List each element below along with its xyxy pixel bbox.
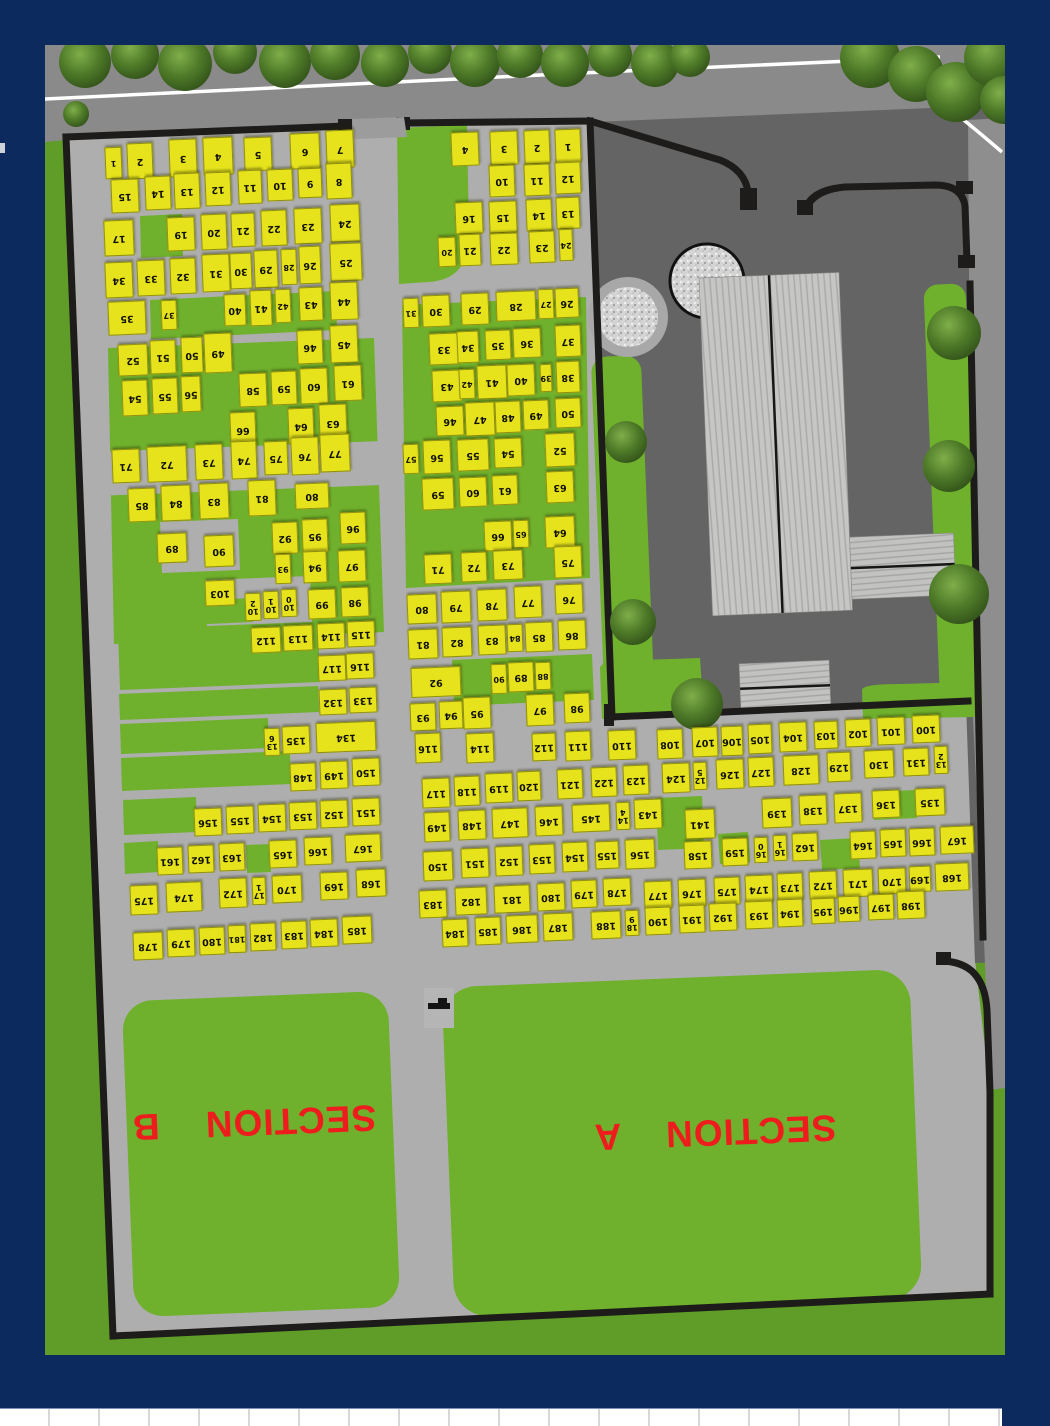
plot-a-116[interactable]: 116 [414, 732, 441, 763]
plot-a-100[interactable]: 100 [911, 714, 940, 743]
plot-a-184[interactable]: 184 [441, 918, 468, 947]
plot-a-139[interactable]: 139 [761, 797, 792, 828]
plot-a-55[interactable]: 55 [456, 438, 489, 471]
plot-a-64[interactable]: 64 [544, 515, 575, 548]
plot-a-93[interactable]: 93 [409, 702, 436, 731]
plot-b-94[interactable]: 94 [302, 551, 327, 584]
plot-a-127[interactable]: 127 [747, 756, 774, 787]
plot-b-55[interactable]: 55 [151, 377, 178, 414]
plot-b-52[interactable]: 52 [117, 343, 148, 376]
plot-a-117[interactable]: 117 [421, 777, 450, 808]
plot-a-176[interactable]: 176 [677, 878, 706, 907]
plot-b-168[interactable]: 168 [355, 868, 386, 897]
plot-a-85[interactable]: 85 [524, 621, 553, 652]
plot-b-28[interactable]: 28 [280, 249, 297, 286]
plot-b-135[interactable]: 135 [281, 725, 310, 754]
plot-b-13[interactable]: 13 [173, 172, 200, 209]
plot-a-182[interactable]: 182 [454, 886, 487, 915]
plot-a-105[interactable]: 105 [747, 724, 772, 755]
plot-b-73[interactable]: 73 [194, 443, 223, 480]
plot-b-71[interactable]: 71 [111, 448, 140, 483]
plot-a-120[interactable]: 120 [516, 771, 541, 802]
plot-a-59[interactable]: 59 [421, 477, 454, 510]
plot-a-20[interactable]: 20 [437, 237, 456, 268]
plot-b-41[interactable]: 41 [249, 290, 272, 327]
plot-a-110[interactable]: 110 [607, 729, 636, 760]
plot-a-119[interactable]: 119 [484, 772, 513, 803]
plot-b-54[interactable]: 54 [121, 379, 148, 416]
plot-a-152[interactable]: 152 [494, 845, 523, 876]
plot-a-14[interactable]: 14 [525, 198, 552, 231]
plot-b-97[interactable]: 97 [337, 549, 366, 582]
plot-b-184[interactable]: 184 [309, 918, 338, 947]
plot-b-149[interactable]: 149 [319, 760, 348, 789]
plot-b-163[interactable]: 163 [218, 842, 245, 871]
plot-a-162[interactable]: 162 [791, 832, 818, 861]
plot-b-166[interactable]: 166 [303, 836, 332, 865]
plot-b-49[interactable]: 49 [203, 332, 233, 373]
plot-a-123[interactable]: 123 [622, 764, 649, 795]
plot-b-76[interactable]: 76 [290, 436, 320, 475]
plot-a-33[interactable]: 33 [428, 332, 459, 365]
plot-a-103[interactable]: 103 [813, 721, 838, 750]
plot-b-50[interactable]: 50 [180, 337, 203, 374]
plot-b-95[interactable]: 95 [301, 518, 328, 553]
plot-a-189[interactable]: 18 9 [624, 910, 639, 937]
plot-a-30[interactable]: 30 [421, 294, 450, 327]
plot-b-33[interactable]: 33 [136, 259, 165, 296]
plot-a-156[interactable]: 156 [624, 838, 655, 869]
plot-b-72[interactable]: 72 [146, 445, 187, 483]
plot-a-79[interactable]: 79 [440, 590, 471, 623]
plot-a-129[interactable]: 129 [826, 752, 851, 783]
plot-b-11[interactable]: 11 [237, 170, 262, 205]
plot-a-107[interactable]: 107 [691, 726, 718, 757]
plot-a-71[interactable]: 71 [423, 553, 452, 584]
plot-a-149[interactable]: 149 [423, 811, 450, 842]
plot-a-37[interactable]: 37 [554, 324, 581, 357]
plot-a-90[interactable]: 90 [490, 664, 507, 695]
plot-a-102[interactable]: 102 [844, 718, 871, 747]
plot-a-181[interactable]: 181 [493, 884, 530, 913]
plot-b-37[interactable]: 37 [160, 300, 177, 331]
plot-b-6[interactable]: 6 [289, 132, 320, 169]
plot-a-56[interactable]: 56 [422, 439, 451, 474]
plot-b-103[interactable]: 103 [204, 579, 235, 606]
plot-b-151[interactable]: 151 [351, 797, 380, 826]
plot-a-40[interactable]: 40 [506, 363, 535, 396]
plot-a-36[interactable]: 36 [512, 327, 541, 358]
plot-a-50[interactable]: 50 [554, 397, 581, 428]
plot-b-99[interactable]: 99 [307, 588, 336, 619]
plot-a-42[interactable]: 42 [458, 369, 475, 400]
plot-a-143[interactable]: 143 [633, 798, 662, 829]
plot-a-188[interactable]: 188 [590, 910, 621, 939]
plot-a-165[interactable]: 165 [879, 828, 906, 857]
plot-a-108[interactable]: 108 [656, 728, 683, 759]
plot-b-20[interactable]: 20 [200, 213, 227, 250]
plot-a-153[interactable]: 153 [528, 843, 555, 874]
border-bottom [0, 1355, 1050, 1408]
plot-b-171[interactable]: 17 1 [251, 877, 266, 906]
plot-a-3[interactable]: 3 [489, 130, 518, 165]
plot-a-2[interactable]: 2 [523, 129, 550, 164]
plot-a-35[interactable]: 35 [484, 329, 511, 360]
plot-a-192[interactable]: 192 [708, 902, 737, 931]
plot-a-168[interactable]: 168 [934, 862, 969, 891]
plot-a-82[interactable]: 82 [441, 626, 472, 657]
plot-b-46[interactable]: 46 [296, 329, 323, 364]
plot-b-61[interactable]: 61 [333, 364, 362, 401]
plot-b-3[interactable]: 3 [168, 138, 198, 177]
plot-a-86[interactable]: 86 [557, 619, 586, 650]
plot-b-115[interactable]: 115 [346, 620, 375, 647]
plot-a-95[interactable]: 95 [462, 696, 491, 729]
plot-b-167[interactable]: 167 [344, 833, 381, 862]
plot-b-75[interactable]: 75 [263, 441, 288, 476]
plot-a-29[interactable]: 29 [460, 292, 489, 325]
plot-a-171[interactable]: 171 [842, 868, 873, 897]
plot-b-162[interactable]: 162 [187, 844, 214, 873]
plot-b-17[interactable]: 17 [103, 219, 134, 256]
plot-b-80[interactable]: 80 [294, 482, 329, 509]
plot-a-121[interactable]: 121 [556, 768, 583, 799]
plot-a-57[interactable]: 57 [402, 444, 419, 475]
plot-b-59[interactable]: 59 [270, 370, 297, 405]
plot-b-14[interactable]: 14 [144, 175, 171, 210]
plot-b-84[interactable]: 84 [160, 484, 191, 521]
plot-b-102[interactable]: 10 2 [244, 593, 261, 622]
plot-a-195[interactable]: 195 [810, 898, 835, 925]
plot-a-154[interactable]: 154 [561, 841, 588, 872]
plot-b-26[interactable]: 26 [298, 246, 322, 285]
plot-b-96[interactable]: 96 [339, 511, 366, 544]
plot-b-35[interactable]: 35 [107, 300, 146, 335]
plot-b-51[interactable]: 51 [149, 339, 176, 374]
plot-a-10[interactable]: 10 [488, 164, 515, 197]
plot-a-169[interactable]: 169 [908, 866, 931, 893]
plot-a-128[interactable]: 128 [782, 754, 819, 785]
plot-a-13[interactable]: 13 [555, 197, 580, 230]
plot-b-15[interactable]: 15 [110, 178, 139, 213]
plot-a-61[interactable]: 61 [491, 474, 518, 505]
plot-a-49[interactable]: 49 [522, 399, 549, 430]
plot-b-134[interactable]: 134 [315, 721, 376, 753]
plot-a-104[interactable]: 104 [778, 721, 807, 752]
plot-a-75[interactable]: 75 [553, 545, 582, 578]
plot-a-187[interactable]: 187 [542, 912, 573, 941]
plot-b-116[interactable]: 116 [345, 652, 374, 679]
plot-a-135[interactable]: 135 [914, 787, 945, 816]
plot-a-24[interactable]: 24 [558, 229, 573, 262]
plot-b-112[interactable]: 112 [250, 626, 281, 653]
plot-b-152[interactable]: 152 [319, 799, 348, 828]
plot-a-66[interactable]: 66 [483, 520, 512, 551]
plot-b-31[interactable]: 31 [201, 253, 231, 292]
plot-a-155[interactable]: 155 [594, 841, 619, 870]
plot-a-98[interactable]: 98 [563, 692, 590, 723]
plot-a-144[interactable]: 14 4 [615, 802, 630, 831]
plot-b-58[interactable]: 58 [238, 372, 267, 407]
plot-a-196[interactable]: 196 [837, 896, 860, 923]
plot-b-179[interactable]: 179 [166, 928, 195, 957]
plot-a-145[interactable]: 145 [571, 803, 610, 833]
plot-a-106[interactable]: 106 [720, 726, 743, 757]
plot-a-21[interactable]: 21 [458, 234, 481, 267]
plot-b-98[interactable]: 98 [340, 586, 369, 617]
plot-a-148[interactable]: 148 [457, 809, 486, 840]
plot-a-11[interactable]: 11 [523, 163, 550, 196]
plot-a-83[interactable]: 83 [477, 624, 506, 655]
plot-a-94[interactable]: 94 [438, 701, 463, 730]
plot-a-175[interactable]: 175 [713, 876, 740, 905]
plot-a-141[interactable]: 141 [684, 808, 715, 839]
plot-b-154[interactable]: 154 [257, 803, 286, 832]
plot-b-23[interactable]: 23 [293, 207, 322, 244]
plot-b-114[interactable]: 114 [316, 622, 345, 649]
plot-b-77[interactable]: 77 [319, 433, 351, 472]
plot-a-28[interactable]: 28 [495, 290, 536, 322]
spreadsheet-row-strip [0, 1408, 1002, 1426]
plot-b-5[interactable]: 5 [243, 136, 272, 171]
border-right [1005, 0, 1050, 1425]
plot-a-125[interactable]: 12 5 [692, 762, 707, 791]
plot-b-153[interactable]: 153 [288, 801, 317, 830]
plot-a-161[interactable]: 16 1 [772, 835, 787, 862]
plot-b-22[interactable]: 22 [260, 209, 287, 246]
plot-a-124[interactable]: 124 [661, 762, 690, 793]
plot-b-178[interactable]: 178 [132, 931, 163, 960]
plot-a-41[interactable]: 41 [476, 364, 507, 399]
plot-b-92[interactable]: 92 [271, 521, 298, 554]
plot-a-177[interactable]: 177 [643, 880, 672, 909]
plot-a-47[interactable]: 47 [464, 401, 495, 436]
plot-b-136[interactable]: 13 6 [263, 728, 280, 757]
plot-a-136[interactable]: 136 [871, 789, 900, 818]
plot-a-54[interactable]: 54 [493, 437, 522, 468]
plot-b-81[interactable]: 81 [247, 479, 276, 516]
plot-a-114[interactable]: 114 [465, 732, 494, 763]
plot-a-112[interactable]: 112 [531, 733, 556, 762]
plot-b-42[interactable]: 42 [274, 289, 291, 324]
border-top [0, 0, 1050, 45]
plot-a-31[interactable]: 31 [402, 298, 419, 329]
plot-a-73[interactable]: 73 [492, 549, 523, 580]
plot-a-180[interactable]: 180 [536, 882, 565, 911]
plot-a-172[interactable]: 172 [808, 870, 837, 899]
plot-b-44[interactable]: 44 [329, 281, 359, 320]
plot-b-169[interactable]: 169 [319, 871, 348, 900]
plot-a-193[interactable]: 193 [744, 900, 773, 929]
plot-b-132[interactable]: 132 [318, 688, 347, 715]
plot-b-10[interactable]: 10 [266, 168, 293, 201]
plot-b-56[interactable]: 56 [180, 376, 201, 413]
plot-a-183[interactable]: 183 [418, 889, 447, 918]
plot-b-4[interactable]: 4 [202, 136, 234, 175]
plot-a-38[interactable]: 38 [555, 361, 580, 394]
plot-b-181[interactable]: 181 [227, 925, 246, 954]
plot-b-174[interactable]: 174 [165, 881, 202, 912]
plot-b-100[interactable]: 10 0 [280, 589, 297, 618]
plot-a-111[interactable]: 111 [564, 730, 591, 761]
plot-b-117[interactable]: 117 [317, 654, 346, 681]
plot-b-89[interactable]: 89 [156, 532, 187, 563]
plot-a-23[interactable]: 23 [528, 230, 555, 263]
plot-b-85[interactable]: 85 [127, 487, 156, 522]
plot-a-122[interactable]: 122 [590, 766, 617, 797]
plot-a-76[interactable]: 76 [554, 583, 583, 614]
plot-a-198[interactable]: 198 [896, 890, 925, 919]
plot-a-147[interactable]: 147 [491, 807, 528, 838]
plot-a-194[interactable]: 194 [776, 898, 803, 927]
plot-a-39[interactable]: 39 [539, 364, 552, 392]
plot-a-130[interactable]: 130 [863, 749, 894, 778]
plot-a-150[interactable]: 150 [422, 850, 453, 881]
plot-b-170[interactable]: 170 [271, 874, 302, 903]
plot-b-165[interactable]: 165 [268, 839, 297, 868]
plot-b-2[interactable]: 2 [126, 142, 153, 179]
plot-b-90[interactable]: 90 [203, 534, 234, 567]
plot-b-183[interactable]: 183 [280, 920, 307, 949]
plot-a-52[interactable]: 52 [544, 432, 575, 467]
plot-a-146[interactable]: 146 [534, 805, 563, 836]
plot-b-1[interactable]: 1 [104, 147, 122, 180]
plot-a-178[interactable]: 178 [602, 877, 631, 906]
plot-a-97[interactable]: 97 [525, 693, 554, 726]
plot-b-21[interactable]: 21 [230, 213, 255, 248]
plot-a-164[interactable]: 164 [849, 830, 876, 859]
plot-a-174[interactable]: 174 [744, 874, 773, 903]
plot-a-179[interactable]: 179 [570, 879, 597, 908]
plot-a-166[interactable]: 166 [908, 827, 935, 856]
plot-b-19[interactable]: 19 [166, 216, 195, 251]
plot-b-9[interactable]: 9 [297, 168, 322, 199]
plot-a-118[interactable]: 118 [453, 775, 480, 806]
plot-a-88[interactable]: 88 [534, 662, 551, 691]
plot-a-81[interactable]: 81 [407, 628, 438, 659]
plot-a-65[interactable]: 65 [512, 520, 529, 549]
plot-a-16[interactable]: 16 [454, 201, 483, 234]
plot-b-182[interactable]: 182 [249, 922, 276, 951]
plot-b-101[interactable]: 10 1 [262, 591, 279, 620]
plot-a-12[interactable]: 12 [554, 161, 581, 194]
plot-a-84[interactable]: 84 [506, 624, 523, 653]
plot-a-173[interactable]: 173 [776, 872, 803, 901]
plot-a-126[interactable]: 126 [715, 758, 744, 789]
plot-a-26[interactable]: 26 [554, 288, 579, 319]
plot-a-158[interactable]: 158 [683, 840, 712, 869]
plot-a-197[interactable]: 197 [867, 893, 894, 920]
plot-b-40[interactable]: 40 [223, 294, 246, 327]
plot-a-89[interactable]: 89 [507, 661, 534, 692]
window-edge-notch [0, 143, 5, 153]
plot-a-186[interactable]: 186 [505, 914, 538, 943]
plot-b-34[interactable]: 34 [104, 261, 133, 298]
plot-a-167[interactable]: 167 [939, 825, 974, 854]
plot-a-185[interactable]: 185 [474, 916, 501, 945]
plot-b-185[interactable]: 185 [341, 915, 372, 944]
plot-b-155[interactable]: 155 [225, 805, 254, 834]
plot-a-63[interactable]: 63 [545, 470, 574, 503]
plot-a-92[interactable]: 92 [410, 666, 461, 698]
plot-a-137[interactable]: 137 [833, 792, 862, 823]
plot-a-72[interactable]: 72 [460, 551, 487, 582]
plot-b-12[interactable]: 12 [204, 171, 231, 206]
plot-a-160[interactable]: 16 0 [753, 837, 768, 864]
plot-b-180[interactable]: 180 [198, 926, 225, 955]
plots-layer: 1234567151413121110981719202122232434333… [0, 0, 1050, 1425]
plot-b-148[interactable]: 148 [289, 762, 316, 791]
plot-b-60[interactable]: 60 [299, 367, 328, 404]
plot-a-22[interactable]: 22 [489, 232, 518, 265]
plot-b-175[interactable]: 175 [129, 884, 158, 915]
border-left [0, 0, 45, 1425]
plot-a-80[interactable]: 80 [406, 593, 437, 624]
plot-a-101[interactable]: 101 [876, 716, 905, 745]
plot-b-161[interactable]: 161 [156, 846, 183, 875]
plot-a-60[interactable]: 60 [458, 476, 487, 507]
plot-a-46[interactable]: 46 [435, 405, 464, 436]
plot-a-131[interactable]: 131 [902, 747, 929, 776]
plot-b-156[interactable]: 156 [193, 807, 222, 836]
plot-a-190[interactable]: 190 [644, 906, 671, 935]
plot-a-15[interactable]: 15 [488, 200, 517, 233]
plot-a-77[interactable]: 77 [513, 585, 542, 618]
plot-b-43[interactable]: 43 [298, 287, 323, 322]
plot-b-113[interactable]: 113 [282, 624, 313, 651]
plot-b-25[interactable]: 25 [329, 242, 362, 281]
plot-b-74[interactable]: 74 [230, 440, 258, 479]
spreadsheet-corner [1002, 1408, 1050, 1425]
plot-b-83[interactable]: 83 [198, 482, 229, 519]
plot-a-27[interactable]: 27 [537, 289, 554, 320]
plot-b-30[interactable]: 30 [229, 253, 252, 290]
plot-b-93[interactable]: 93 [274, 554, 291, 585]
plot-b-172[interactable]: 172 [218, 877, 247, 908]
plot-a-132[interactable]: 13 2 [933, 746, 948, 775]
plot-a-191[interactable]: 191 [678, 904, 705, 933]
plot-a-48[interactable]: 48 [494, 400, 521, 433]
plot-b-133[interactable]: 133 [348, 686, 377, 713]
plot-a-1[interactable]: 1 [554, 128, 581, 163]
plot-a-151[interactable]: 151 [460, 847, 489, 878]
plot-b-150[interactable]: 150 [351, 757, 380, 786]
plot-b-29[interactable]: 29 [253, 250, 279, 289]
plot-a-159[interactable]: 159 [721, 837, 748, 866]
plot-b-8[interactable]: 8 [325, 162, 352, 199]
plot-a-78[interactable]: 78 [476, 588, 507, 621]
plot-a-4[interactable]: 4 [450, 131, 479, 166]
plot-a-34[interactable]: 34 [456, 331, 479, 364]
plot-a-138[interactable]: 138 [798, 794, 827, 825]
plot-b-45[interactable]: 45 [329, 324, 359, 363]
plot-b-32[interactable]: 32 [169, 257, 196, 294]
plot-b-24[interactable]: 24 [329, 203, 361, 242]
